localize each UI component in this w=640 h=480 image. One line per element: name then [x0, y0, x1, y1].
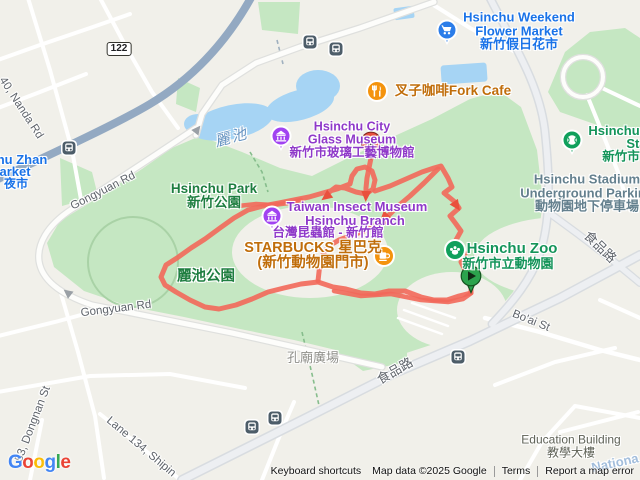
- fork-cafe-label[interactable]: 叉子咖啡Fork Cafe: [395, 84, 511, 98]
- google-logo[interactable]: Google: [8, 452, 70, 474]
- attribution-divider: [494, 466, 495, 477]
- route-122-shield: 122: [107, 42, 132, 56]
- flower-market-label[interactable]: Hsinchu WeekendFlower Market新竹假日花市: [463, 11, 575, 52]
- pond-label: 麗池: [214, 127, 251, 151]
- lichi-park-label[interactable]: 麗池公園: [177, 269, 235, 284]
- education-building-label: Education Building教學大樓: [521, 433, 620, 458]
- street-gongyuan-rd-1: Gongyuan Rd: [69, 170, 138, 213]
- street-lane-134: Lane 134, Shipin: [104, 415, 178, 480]
- zoo-label-2[interactable]: 新竹市立動物園: [462, 257, 553, 271]
- map-data-text: Map data ©2025 Google: [372, 465, 487, 477]
- zhan-market-label-3[interactable]: 夜市: [4, 178, 28, 191]
- map-labels: Hsinchu WeekendFlower Market新竹假日花市叉子咖啡Fo…: [0, 0, 640, 480]
- google-logo-letter: G: [8, 452, 22, 473]
- google-logo-letter: o: [33, 452, 44, 473]
- street-nanda-rd: 40, Nanda Rd: [0, 75, 45, 141]
- google-logo-letter: o: [22, 452, 33, 473]
- attribution-divider: [537, 466, 538, 477]
- underground-parking-label[interactable]: Hsinchu StadiumUnderground Parking動物園地下停…: [520, 173, 640, 214]
- confucius-square-label: 孔廟廣場: [287, 351, 339, 365]
- keyboard-shortcuts-link[interactable]: Keyboard shortcuts: [271, 465, 361, 477]
- insect-museum-label-1[interactable]: Taiwan Insect Museum: [287, 200, 428, 214]
- map-canvas[interactable]: Hsinchu WeekendFlower Market新竹假日花市叉子咖啡Fo…: [0, 0, 640, 480]
- stadium-label-3[interactable]: 新竹市: [602, 150, 640, 163]
- hsinchu-park-label[interactable]: Hsinchu Park新竹公園: [171, 182, 257, 210]
- glass-museum-label[interactable]: Hsinchu CityGlass Museum新竹市玻璃工藝博物館: [289, 120, 414, 159]
- insect-museum-label-3[interactable]: 台灣昆蟲館 - 新竹館: [272, 226, 383, 239]
- street-shipin-rd-1: 食品路: [375, 355, 416, 386]
- terms-link[interactable]: Terms: [502, 465, 531, 477]
- street-shipin-rd-2: 食品路: [581, 229, 619, 266]
- street-boai-st: Bo'ai St: [511, 308, 552, 334]
- report-error-link[interactable]: Report a map error: [545, 465, 634, 477]
- google-logo-letter: e: [60, 452, 70, 473]
- street-gongyuan-rd-2: Gongyuan Rd: [80, 299, 152, 320]
- starbucks-label[interactable]: STARBUCKS 星巴克(新竹動物園門市): [244, 241, 381, 271]
- zoo-label-1[interactable]: Hsinchu Zoo: [467, 241, 558, 257]
- attribution-bar: Keyboard shortcuts Map data ©2025 Google…: [271, 465, 634, 477]
- google-logo-letter: g: [45, 452, 56, 473]
